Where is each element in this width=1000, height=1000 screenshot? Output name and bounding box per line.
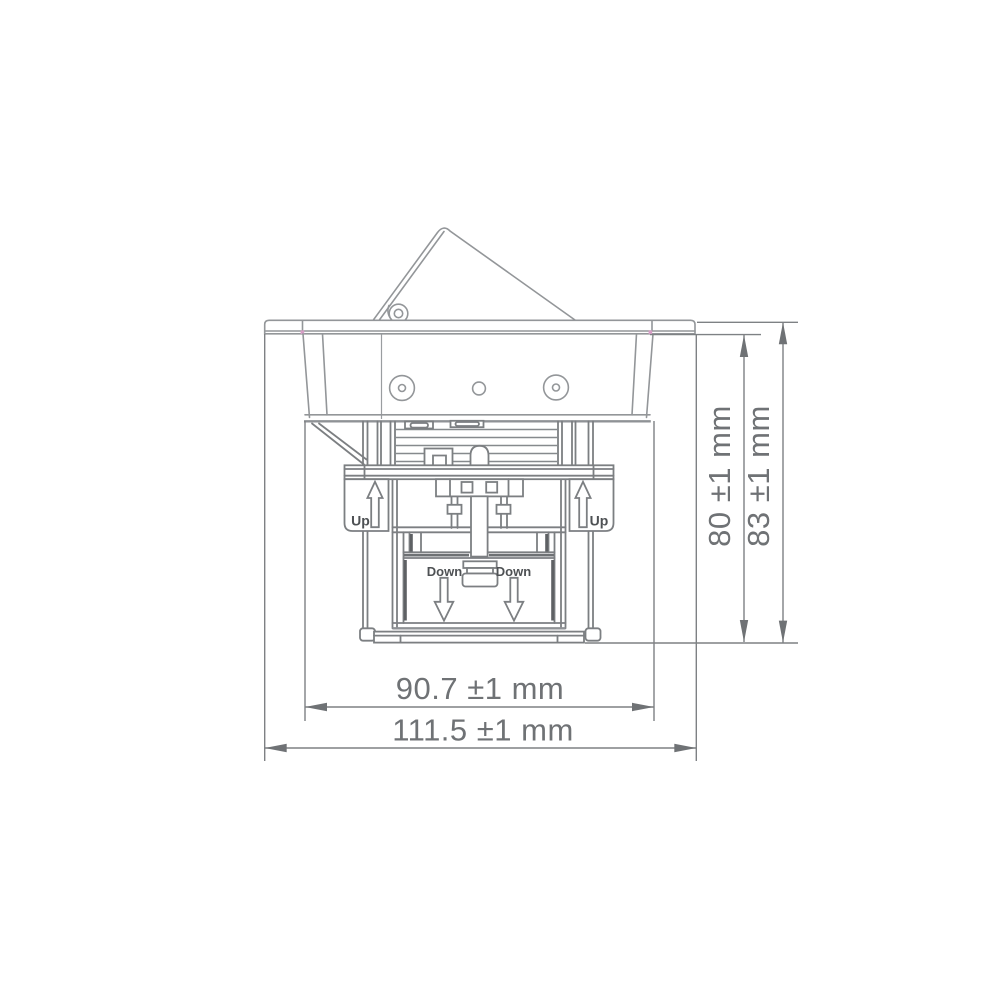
bottom-plate: [374, 632, 584, 643]
keyway-block: [425, 449, 453, 466]
foot-right: [586, 628, 601, 640]
down-label-right: Down: [496, 564, 531, 579]
upper-housing: [303, 334, 653, 422]
down-arrow-right-icon: [505, 578, 524, 621]
post-foot-left: [448, 505, 462, 514]
dim-height-inner-label: 80 ±1 mm: [702, 405, 737, 547]
up-label-right: Up: [590, 513, 609, 529]
center-hole: [473, 382, 486, 395]
dim-width-inner-label: 90.7 ±1 mm: [396, 671, 564, 706]
open-lid: [372, 228, 579, 323]
down-arrow-left-icon: [435, 578, 454, 621]
dim-width-outer-label: 111.5 ±1 mm: [392, 713, 574, 748]
diagonal-brace: [312, 424, 364, 465]
flange: [345, 465, 614, 479]
technical-drawing: Up Up Down Down: [0, 0, 1000, 1000]
latch-clip: [463, 561, 498, 586]
dim-height-outer-label: 83 ±1 mm: [741, 405, 776, 547]
drawing-canvas: Up Up Down Down: [0, 0, 1000, 1000]
screw-left: [390, 376, 415, 401]
dim-height-outer: 83 ±1 mm: [741, 322, 787, 642]
screw-right: [544, 375, 569, 400]
up-label-left: Up: [351, 513, 370, 529]
post-foot-right: [497, 505, 511, 514]
plunger-dome: [471, 446, 489, 466]
top-plate: [265, 320, 695, 334]
ribbed-cartridge: [395, 421, 558, 466]
dimension-annotations: 90.7 ±1 mm 111.5 ±1 mm 80 ±1 mm 83 ±1 mm: [265, 322, 798, 761]
center-carriage: [436, 479, 523, 556]
up-tab-right: Up: [570, 479, 614, 531]
t-bar: [436, 479, 523, 496]
center-stem: [471, 496, 488, 556]
up-tab-left: Up: [345, 479, 389, 531]
dim-width-outer: 111.5 ±1 mm: [265, 713, 697, 753]
down-label-left: Down: [427, 564, 462, 579]
corner-mark-right: [649, 330, 653, 334]
foot-left: [360, 628, 375, 640]
dim-width-inner: 90.7 ±1 mm: [305, 671, 654, 711]
